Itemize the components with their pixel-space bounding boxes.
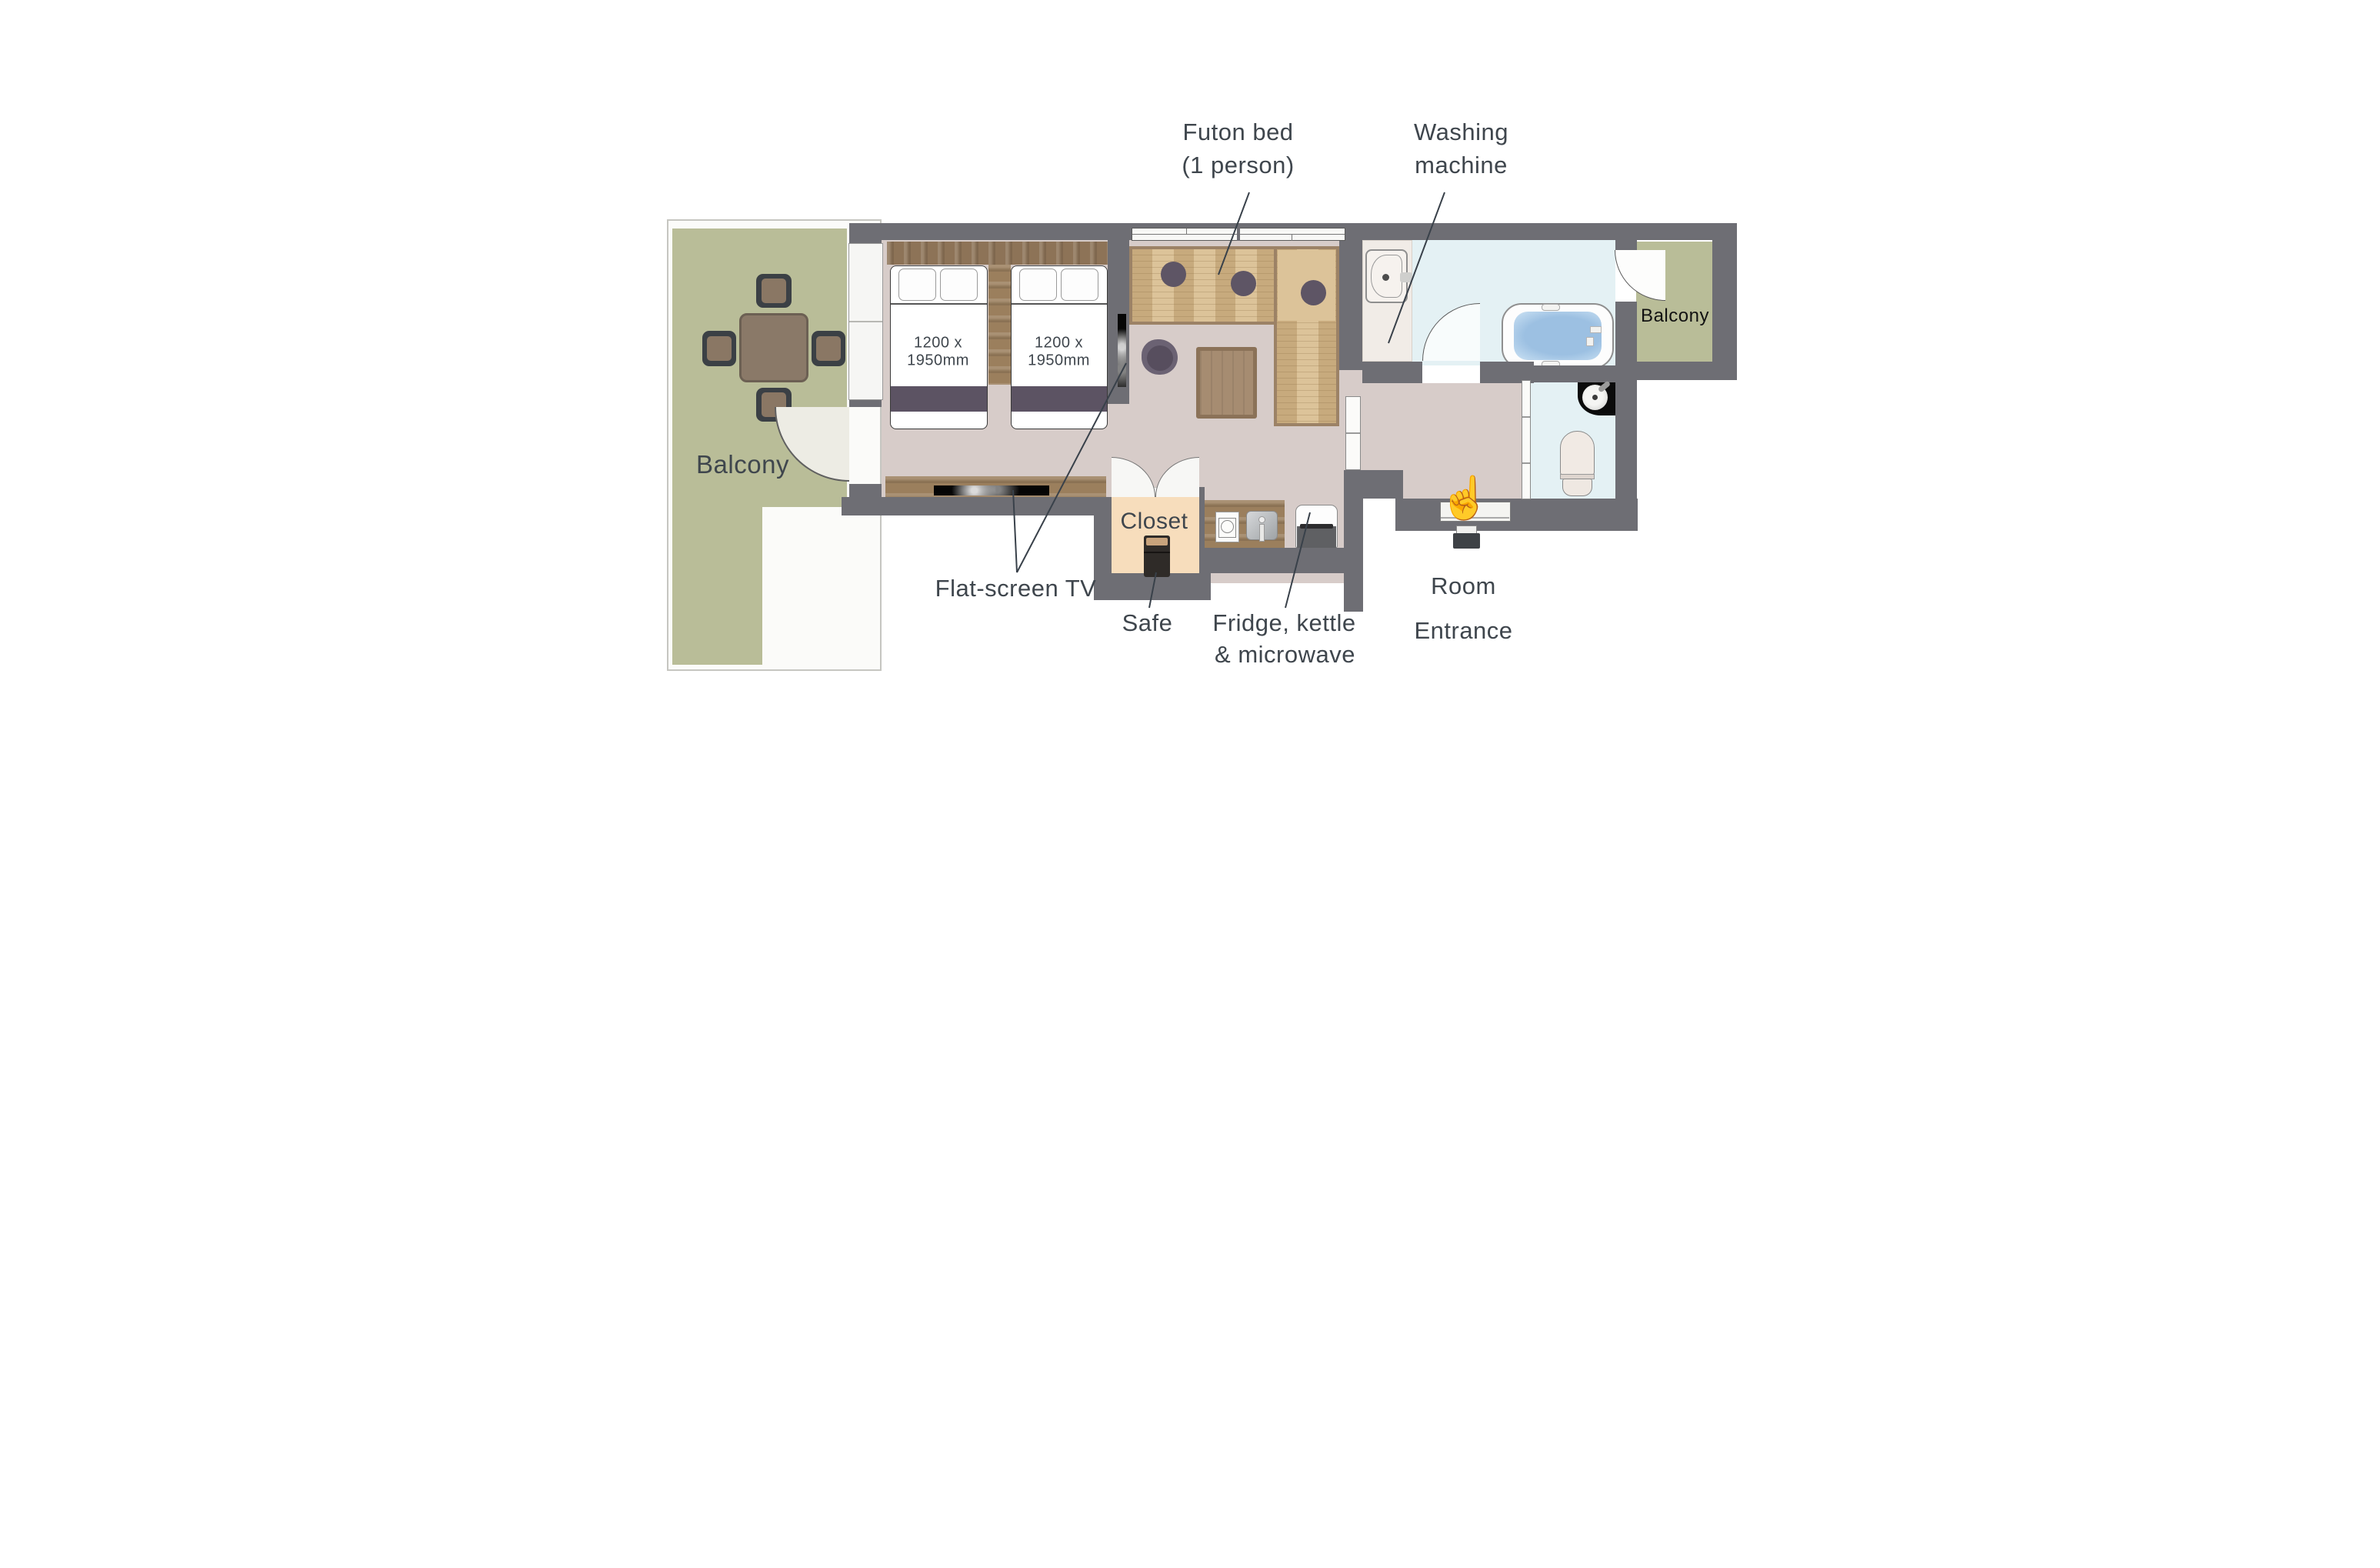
floor-plan: Balcony — [595, 0, 1785, 784]
bathtub-faucet-icon — [1590, 326, 1602, 333]
toilet-icon-base — [1562, 479, 1592, 496]
flat-screen-tv-icon — [934, 485, 1049, 495]
bed-size-label: 1950mm — [1028, 352, 1090, 370]
floor-chair-seat — [1147, 345, 1173, 371]
wall-toilet-north — [1534, 365, 1615, 382]
kitchen-faucet-stem — [1259, 524, 1265, 542]
pillow-icon — [940, 269, 978, 301]
wall-bath-balcony-divider-upper — [1615, 223, 1637, 250]
pillow-icon — [1019, 269, 1057, 301]
fridge-lower-half — [1297, 526, 1336, 548]
floor-cushion-icon — [1301, 280, 1326, 305]
outdoor-table-icon — [739, 313, 808, 382]
chair-seat — [816, 336, 841, 361]
kettle-appliance-circle — [1221, 520, 1234, 533]
bathtub-handle — [1542, 304, 1560, 311]
futon-bed-label-line1: Futon bed — [1182, 118, 1293, 146]
room-entrance-label-line1: Room — [1431, 572, 1496, 600]
flat-screen-tv-icon — [1118, 314, 1126, 387]
bed-size-label: 1200 x — [1035, 335, 1083, 352]
washer-drain-dot — [1382, 274, 1389, 281]
room-entrance-pointer-icon: ☝ — [1439, 475, 1492, 523]
washer-faucet-icon — [1400, 272, 1412, 282]
wall-hall-northwest-bar — [1344, 470, 1403, 499]
closet-label: Closet — [1120, 509, 1188, 535]
duvet-fold-line — [891, 303, 987, 305]
chair-seat — [762, 279, 786, 303]
wall-outer-right — [1712, 223, 1737, 380]
balcony-right-door-swing — [1615, 250, 1665, 301]
pointer-pedestal — [1453, 533, 1480, 549]
bedroom-balcony-window-divider — [849, 321, 882, 322]
floor-cushion-icon — [1161, 262, 1186, 287]
safe-label: Safe — [1122, 609, 1173, 637]
bed-size-label: 1950mm — [907, 352, 969, 370]
wall-kitchen-south — [1205, 548, 1344, 573]
bathtub-water — [1514, 312, 1602, 360]
toilet-sliding-door-notch — [1522, 416, 1530, 418]
washing-machine-label-line2: machine — [1415, 152, 1508, 179]
wall-balcony-right-south — [1636, 362, 1737, 380]
toilet-sink-drain — [1592, 395, 1598, 400]
floor-cushion-icon — [1231, 271, 1256, 296]
wall-bath-south-a — [1362, 362, 1422, 383]
kitchen-faucet-icon — [1258, 516, 1265, 523]
headboard-panel — [887, 242, 1108, 265]
duvet-fold-line — [1012, 303, 1107, 305]
fridge-label-line1: Fridge, kettle — [1212, 609, 1355, 637]
pillow-icon — [898, 269, 936, 301]
low-table-icon — [1196, 347, 1257, 419]
futon-bed-label-line2: (1 person) — [1182, 152, 1294, 179]
balcony-left-label: Balcony — [696, 450, 789, 479]
living-hall-door-notch — [1346, 432, 1360, 434]
wall-bedroom-south — [842, 497, 1106, 515]
bathtub-faucet-icon — [1586, 337, 1594, 346]
bed-runner-band — [891, 386, 987, 412]
wall-closet-south — [1094, 573, 1211, 600]
living-window-divider — [1186, 229, 1188, 235]
wall-closet-kitchen-divider — [1199, 487, 1205, 573]
wall-bath-balcony-divider-lower — [1615, 302, 1637, 531]
chair-seat — [707, 336, 732, 361]
safe-door-line — [1144, 552, 1170, 553]
living-window-divider — [1292, 235, 1293, 241]
wall-hall-south — [1395, 499, 1638, 531]
toilet-sliding-door-notch — [1522, 462, 1530, 464]
balcony-left-floor-lower — [672, 507, 762, 665]
toilet-sliding-door — [1522, 380, 1531, 499]
bed-runner-band — [1012, 386, 1107, 412]
pillow-icon — [1061, 269, 1098, 301]
between-beds-wood — [988, 265, 1011, 385]
safe-handle — [1146, 538, 1168, 545]
toilet-icon-bowl — [1560, 431, 1595, 475]
washing-machine-label-line1: Washing — [1414, 118, 1508, 146]
living-window-center-post — [1237, 228, 1240, 241]
bed-size-label: 1200 x — [914, 335, 962, 352]
fridge-label-line2: & microwave — [1215, 641, 1355, 669]
flat-screen-tv-label: Flat-screen TV — [935, 575, 1097, 602]
wall-living-washer — [1339, 240, 1362, 370]
room-entrance-label-line2: Entrance — [1414, 617, 1512, 645]
fridge-handle — [1300, 524, 1333, 529]
balcony-right-label: Balcony — [1641, 305, 1709, 327]
